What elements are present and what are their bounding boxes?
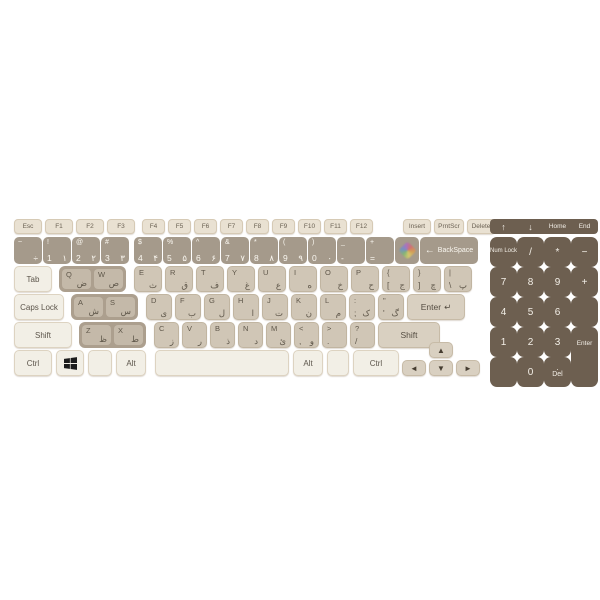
left-letter-panel-q: QضWص: [59, 266, 126, 292]
numpad-key-7[interactable]: 7: [490, 267, 517, 297]
key-f1[interactable]: F1: [45, 219, 73, 234]
numpad-nav-up-key[interactable]: ↑: [490, 219, 517, 234]
key-latin-label: 8: [254, 254, 259, 263]
numpad-block: Num Lock/*−789+456123Enter0.Del: [490, 237, 598, 387]
key-bottom-labels: 9۹: [283, 254, 303, 263]
key-sym[interactable]: :;ک: [349, 294, 375, 320]
key-latin-label: 2: [76, 254, 81, 263]
key-d[interactable]: Dی: [146, 294, 172, 320]
home-row: Caps LockAشSسDیFبGلHاJتKنLم:;ک"'گEnter↵: [14, 294, 468, 320]
key-m[interactable]: Mئ: [266, 322, 291, 348]
right-alt-key[interactable]: Alt: [293, 350, 323, 376]
key-esc-label: Esc: [23, 223, 34, 230]
key-bottom-labels: 6۶: [196, 254, 216, 263]
arrow-left-key-glyph: ◄: [410, 364, 418, 373]
key-f5-label: F5: [176, 223, 184, 230]
numpad-nav-end-key[interactable]: End: [571, 219, 598, 234]
key-delete-label: Delete: [472, 223, 491, 230]
key-a[interactable]: Aش: [74, 297, 103, 317]
key-s[interactable]: Sس: [106, 297, 135, 317]
key-bottom-labels: ذ: [215, 337, 230, 346]
key-f10-label: F10: [304, 223, 315, 230]
numpad-key-0[interactable]: 0: [517, 357, 544, 387]
key-v[interactable]: Vر: [182, 322, 207, 348]
numpad-blank-key-2[interactable]: [490, 357, 517, 387]
key-top-label: :: [354, 297, 370, 305]
key-4[interactable]: $4۴: [134, 237, 162, 264]
key-top-label: +: [370, 239, 390, 246]
key-top-label: @: [76, 239, 96, 246]
key-bottom-labels: [ج: [387, 281, 405, 290]
key-latin-label: .: [327, 337, 329, 346]
key-farsi-label: ۵: [182, 254, 187, 263]
key-top-label: $: [138, 239, 158, 246]
numpad-key-2[interactable]: 2: [517, 327, 544, 357]
key-bottom-labels: 'گ: [383, 309, 399, 318]
left-alt-key-label: Alt: [126, 359, 135, 368]
key-i[interactable]: Iه: [289, 266, 317, 292]
key-farsi-label: و: [310, 337, 314, 346]
key-n[interactable]: Nد: [238, 322, 263, 348]
key-f1-label: F1: [55, 223, 63, 230]
key-top-label: N: [243, 325, 258, 333]
key-farsi-label: ج: [400, 281, 406, 290]
backspace-arrow-icon: ←: [425, 246, 435, 256]
key-bottom-labels: ض: [66, 279, 87, 288]
key-f3[interactable]: F3: [107, 219, 135, 234]
windows-logo-icon: [64, 357, 77, 370]
function-row: EscF1F2F3F4F5F6F7F8F9F10F11F12InsertPrnt…: [14, 219, 498, 234]
numpad-key-6[interactable]: 6: [544, 297, 571, 327]
right-ctrl-key-label: Ctrl: [370, 359, 382, 368]
right-alt-key-label: Alt: [303, 359, 312, 368]
key-sym[interactable]: ~÷: [14, 237, 42, 264]
key-bottom-labels: د: [243, 337, 258, 346]
key-bottom-labels: /: [355, 337, 370, 346]
key-bottom-labels: 3۳: [105, 254, 125, 263]
numpad-key-9[interactable]: 9: [544, 267, 571, 297]
key-3[interactable]: #3۳: [101, 237, 129, 264]
key-p[interactable]: Pح: [351, 266, 379, 292]
key-top-label: B: [215, 325, 230, 333]
key-bottom-labels: ح: [356, 281, 374, 290]
key-latin-label: ,: [299, 337, 301, 346]
key-latin-label: 6: [196, 254, 201, 263]
numpad-nav-label: ↑: [501, 222, 506, 232]
key-f[interactable]: Fب: [175, 294, 201, 320]
key-k[interactable]: Kن: [291, 294, 317, 320]
blank-key-left[interactable]: [88, 350, 112, 376]
key-farsi-label: ر: [198, 337, 202, 346]
numpad-minus-key-label: −: [582, 247, 588, 258]
spacer: [376, 219, 403, 234]
key-1[interactable]: !1۱: [43, 237, 71, 264]
key-top-label: L: [325, 297, 341, 305]
key-bottom-labels: ف: [201, 281, 219, 290]
numpad-plus-key-label: +: [582, 277, 588, 288]
numpad-key-1[interactable]: 1: [490, 327, 517, 357]
backspace-key-label: BackSpace: [438, 247, 473, 254]
key-r[interactable]: Rق: [165, 266, 193, 292]
key-z[interactable]: Zظ: [82, 325, 111, 345]
key-bottom-labels: ت: [267, 309, 283, 318]
tab-key[interactable]: Tab: [14, 266, 52, 292]
key-bottom-labels: ه: [294, 281, 312, 290]
key-top-label: ": [383, 297, 399, 305]
key-bottom-labels: ;ک: [354, 309, 370, 318]
key-sym[interactable]: {[ج: [382, 266, 410, 292]
number-row: ~÷!1۱@2۲#3۳$4۴%5۵^6۶&7۷*8۸(9۹)0۰_-+=←Bac…: [14, 237, 479, 264]
key-bottom-labels: ز: [159, 337, 174, 346]
key-top-label: D: [151, 297, 167, 305]
key-top-label: ^: [196, 239, 216, 246]
key-top-label: <: [299, 325, 314, 333]
key-bottom-labels: ل: [209, 309, 225, 318]
spacer: [126, 266, 134, 292]
backspace-key[interactable]: ←BackSpace: [420, 237, 478, 264]
right-ctrl-key[interactable]: Ctrl: [353, 350, 399, 376]
key-farsi-label: ۸: [269, 254, 274, 263]
key-top-label: _: [341, 239, 361, 246]
key-bottom-labels: ط: [118, 335, 139, 344]
key-farsi-label: ۲: [91, 254, 96, 263]
key-sym[interactable]: >.: [322, 322, 347, 348]
numpad-key-5-label: 5: [528, 307, 534, 318]
key-sym[interactable]: }]چ: [413, 266, 441, 292]
key-bottom-labels: 8۸: [254, 254, 274, 263]
key-latin-label: ': [383, 309, 385, 318]
key-latin-label: -: [341, 254, 344, 263]
key-bottom-labels: ظ: [86, 335, 107, 344]
key-top-label: H: [238, 297, 254, 305]
key-top-label: !: [47, 239, 67, 246]
key-sym[interactable]: "'گ: [378, 294, 404, 320]
arrow-down-key-glyph: ▼: [437, 364, 445, 373]
bottom-row: CtrlAltAltCtrl: [14, 350, 402, 376]
key-farsi-label: ۰: [327, 254, 332, 263]
key-farsi-label: ئ: [279, 337, 286, 346]
key-farsi-label: ۹: [298, 254, 303, 263]
key-top-label: M: [271, 325, 286, 333]
numpad-key-5[interactable]: 5: [517, 297, 544, 327]
key-farsi-label: ۷: [240, 254, 245, 263]
key-farsi-label: د: [254, 337, 258, 346]
enter-arrow-icon: ↵: [444, 302, 451, 313]
key-x[interactable]: Xط: [114, 325, 143, 345]
key-latin-label: 4: [138, 254, 143, 263]
enter-key[interactable]: Enter↵: [407, 294, 465, 320]
key-latin-label: \: [449, 281, 451, 290]
arrow-left-key[interactable]: ◄: [402, 360, 426, 376]
numpad-key-7-label: 7: [501, 277, 507, 288]
key-sym[interactable]: +=: [366, 237, 394, 264]
key-latin-label: 7: [225, 254, 230, 263]
key-bottom-labels: ن: [296, 309, 312, 318]
key-f4[interactable]: F4: [142, 219, 165, 234]
numpad-multiply-key[interactable]: *: [544, 237, 571, 267]
arrow-up-key-glyph: ▲: [437, 346, 445, 355]
numpad-blank-key-1[interactable]: [571, 297, 598, 327]
numpad-enter-key[interactable]: Enter: [571, 327, 598, 387]
key-farsi-label: ف: [210, 281, 219, 290]
enter-key-label: Enter: [421, 302, 441, 312]
key-f7-label: F7: [228, 223, 236, 230]
key-f9-label: F9: [280, 223, 288, 230]
left-shift-key-label: Shift: [35, 331, 51, 340]
arrow-up-key[interactable]: ▲: [429, 342, 453, 358]
key-g[interactable]: Gل: [204, 294, 230, 320]
numpad-del-key[interactable]: .Del: [544, 357, 571, 387]
arrow-right-key[interactable]: ►: [456, 360, 480, 376]
key-sym[interactable]: <,و: [294, 322, 319, 348]
numpad-nav-home-key[interactable]: Home: [544, 219, 571, 234]
key-f12-label: F12: [356, 223, 367, 230]
key-latin-label: =: [370, 254, 375, 263]
key-bottom-labels: 1۱: [47, 254, 67, 263]
key-bottom-labels: 0۰: [312, 254, 332, 263]
key-u[interactable]: Uع: [258, 266, 286, 292]
key-bottom-labels: ش: [78, 307, 99, 316]
key-bottom-labels: ب: [180, 309, 196, 318]
numpad-key-4[interactable]: 4: [490, 297, 517, 327]
key-bottom-labels: 4۴: [138, 254, 158, 263]
key-l[interactable]: Lم: [320, 294, 346, 320]
numpad-key-8-label: 8: [528, 277, 534, 288]
key-farsi-label: پ: [459, 281, 467, 290]
key-latin-label: /: [355, 337, 357, 346]
key-bottom-labels: ئ: [271, 337, 286, 346]
key-farsi-label: ه: [308, 281, 312, 290]
left-shift-key[interactable]: Shift: [14, 322, 72, 348]
key-farsi-label: ذ: [226, 337, 230, 346]
key-top-label: (: [283, 239, 303, 246]
key-top-label: K: [296, 297, 312, 305]
key-latin-label: ;: [354, 309, 356, 318]
spacer: [138, 294, 146, 320]
key-j[interactable]: Jت: [262, 294, 288, 320]
key-q[interactable]: Qض: [62, 269, 91, 289]
key-farsi-label: ب: [188, 309, 196, 318]
key-farsi-label: غ: [245, 281, 250, 290]
key-w[interactable]: Wص: [94, 269, 123, 289]
key-insert-label: Insert: [409, 223, 425, 230]
key-bottom-labels: 2۲: [76, 254, 96, 263]
key-farsi-label: ع: [276, 281, 281, 290]
key-f6[interactable]: F6: [194, 219, 217, 234]
key-5[interactable]: %5۵: [163, 237, 191, 264]
numpad-plus-key[interactable]: +: [571, 267, 598, 297]
key-f2-label: F2: [86, 223, 94, 230]
key-farsi-label: ث: [149, 281, 157, 290]
key-top-label: U: [263, 269, 281, 277]
key-0[interactable]: )0۰: [308, 237, 336, 264]
left-letter-panel-z: ZظXط: [79, 322, 146, 348]
key-farsi-label: س: [121, 307, 131, 316]
windows-key[interactable]: [56, 350, 84, 376]
key-bottom-labels: ص: [98, 279, 119, 288]
key-esc[interactable]: Esc: [14, 219, 42, 234]
key-farsi-label: ش: [89, 307, 99, 316]
language-logo-key[interactable]: [395, 237, 419, 264]
key-f10[interactable]: F10: [298, 219, 321, 234]
key-y[interactable]: Yغ: [227, 266, 255, 292]
left-alt-key[interactable]: Alt: [116, 350, 146, 376]
numpad-del-label: Del: [552, 371, 563, 379]
key-insert[interactable]: Insert: [403, 219, 431, 234]
key-sym[interactable]: _-: [337, 237, 365, 264]
key-bottom-labels: =: [370, 254, 390, 263]
key-top-label: F: [180, 297, 196, 305]
numpad-minus-key[interactable]: −: [571, 237, 598, 267]
key-f7[interactable]: F7: [220, 219, 243, 234]
key-sym[interactable]: |\پ: [444, 266, 472, 292]
key-f11[interactable]: F11: [324, 219, 347, 234]
numpad-nav-label: End: [579, 223, 591, 230]
key-farsi-label: چ: [431, 281, 437, 290]
numpad-nav-label: ↓: [528, 222, 533, 232]
key-farsi-label: ظ: [99, 335, 107, 344]
key-bottom-labels: ر: [187, 337, 202, 346]
key-f8[interactable]: F8: [246, 219, 269, 234]
key-f5[interactable]: F5: [168, 219, 191, 234]
numpad-key-4-label: 4: [501, 307, 507, 318]
space-bar[interactable]: [155, 350, 289, 376]
key-farsi-label: ۴: [153, 254, 158, 263]
key-farsi-label: ن: [306, 309, 312, 318]
key-top-label: I: [294, 269, 312, 277]
key-top-label: E: [139, 269, 157, 277]
blank-key-right[interactable]: [327, 350, 349, 376]
key-8[interactable]: *8۸: [250, 237, 278, 264]
numpad-key-9-label: 9: [555, 277, 561, 288]
key-top-label: T: [201, 269, 219, 277]
key-f4-label: F4: [150, 223, 158, 230]
key-o[interactable]: Oخ: [320, 266, 348, 292]
numpad-key-1-label: 1: [501, 337, 507, 348]
key-farsi-label: ۶: [211, 254, 216, 263]
key-top-label: Y: [232, 269, 250, 277]
key-bottom-labels: ی: [151, 309, 167, 318]
numpad-numlock-key[interactable]: Num Lock: [490, 237, 517, 267]
key-9[interactable]: (9۹: [279, 237, 307, 264]
right-shift-key-label: Shift: [400, 330, 417, 340]
key-f2[interactable]: F2: [76, 219, 104, 234]
key-prntscr-label: PrntScr: [438, 223, 460, 230]
numpad-key-0-label: 0: [528, 367, 534, 378]
key-top-label: ): [312, 239, 332, 246]
key-bottom-labels: .: [327, 337, 342, 346]
key-bottom-labels: ث: [139, 281, 157, 290]
key-top-label: J: [267, 297, 283, 305]
numpad-divide-key-label: /: [529, 247, 532, 258]
key-farsi-label: ح: [369, 281, 375, 290]
key-h[interactable]: Hا: [233, 294, 259, 320]
numpad-enter-key-label: Enter: [577, 340, 593, 347]
key-farsi-label: ق: [181, 281, 188, 290]
key-f12[interactable]: F12: [350, 219, 373, 234]
key-farsi-label: ۱: [62, 254, 67, 263]
tab-key-label: Tab: [27, 275, 40, 284]
key-farsi-label: گ: [391, 309, 399, 318]
key-bottom-labels: ع: [263, 281, 281, 290]
key-farsi-label: ا: [252, 309, 254, 318]
arrow-down-key[interactable]: ▼: [429, 360, 453, 376]
key-prntscr[interactable]: PrntScr: [434, 219, 464, 234]
key-e[interactable]: Eث: [134, 266, 162, 292]
key-t[interactable]: Tف: [196, 266, 224, 292]
key-c[interactable]: Cز: [154, 322, 179, 348]
numpad-key-8[interactable]: 8: [517, 267, 544, 297]
qwerty-row: TabQضWصEثRقTفYغUعIهOخPح{[ج}]چ|\پ: [14, 266, 475, 292]
key-latin-label: 9: [283, 254, 288, 263]
persian-keyboard-illustration: EscF1F2F3F4F5F6F7F8F9F10F11F12InsertPrnt…: [0, 0, 600, 600]
key-b[interactable]: Bذ: [210, 322, 235, 348]
key-bottom-labels: ]چ: [418, 281, 436, 290]
left-ctrl-key-label: Ctrl: [27, 359, 39, 368]
key-top-label: ?: [355, 325, 370, 333]
key-top-label: ~: [18, 239, 38, 246]
key-latin-label: 3: [105, 254, 110, 263]
numpad-nav-label: Home: [549, 223, 566, 230]
key-6[interactable]: ^6۶: [192, 237, 220, 264]
numpad-key-6-label: 6: [555, 307, 561, 318]
color-diamond-icon: [398, 241, 416, 259]
left-ctrl-key[interactable]: Ctrl: [14, 350, 52, 376]
key-latin-label: [: [387, 281, 389, 290]
key-7[interactable]: &7۷: [221, 237, 249, 264]
numpad-divide-key[interactable]: /: [517, 237, 544, 267]
key-bottom-labels: \پ: [449, 281, 467, 290]
key-bottom-labels: س: [110, 307, 131, 316]
key-top-label: V: [187, 325, 202, 333]
key-top-label: |: [449, 269, 467, 277]
key-bottom-labels: ,و: [299, 337, 314, 346]
key-bottom-labels: غ: [232, 281, 250, 290]
numpad-key-3[interactable]: 3: [544, 327, 571, 357]
key-top-label: R: [170, 269, 188, 277]
caps-lock-key[interactable]: Caps Lock: [14, 294, 64, 320]
key-2[interactable]: @2۲: [72, 237, 100, 264]
key-top-label: %: [167, 239, 187, 246]
key-f3-label: F3: [117, 223, 125, 230]
key-bottom-labels: ÷: [18, 254, 38, 263]
key-farsi-label: ض: [77, 279, 87, 288]
key-farsi-label: خ: [338, 281, 344, 290]
key-top-label: >: [327, 325, 342, 333]
arrow-right-key-glyph: ►: [464, 364, 472, 373]
key-farsi-label: ص: [109, 279, 119, 288]
key-sym[interactable]: ?/: [350, 322, 375, 348]
numpad-key-3-label: 3: [555, 337, 561, 348]
key-farsi-label: ل: [219, 309, 225, 318]
numpad-multiply-key-label: *: [556, 247, 560, 258]
numpad-numlock-key-label: Num Lock: [490, 248, 517, 255]
shift-row: ShiftZظXطCزVرBذNدMئ<,و>.?/Shift: [14, 322, 443, 348]
numpad-nav-bar: ↑↓HomeEnd: [490, 219, 598, 234]
key-f9[interactable]: F9: [272, 219, 295, 234]
key-f11-label: F11: [330, 223, 341, 230]
key-latin-label: 5: [167, 254, 172, 263]
key-f8-label: F8: [254, 223, 262, 230]
key-bottom-labels: 7۷: [225, 254, 245, 263]
key-latin-label: 0: [312, 254, 317, 263]
left-letter-panel-a: AشSس: [71, 294, 138, 320]
key-f6-label: F6: [202, 223, 210, 230]
key-bottom-labels: 5۵: [167, 254, 187, 263]
key-farsi-label: ک: [362, 309, 370, 318]
numpad-nav-down-key[interactable]: ↓: [517, 219, 544, 234]
key-top-label: {: [387, 269, 405, 277]
